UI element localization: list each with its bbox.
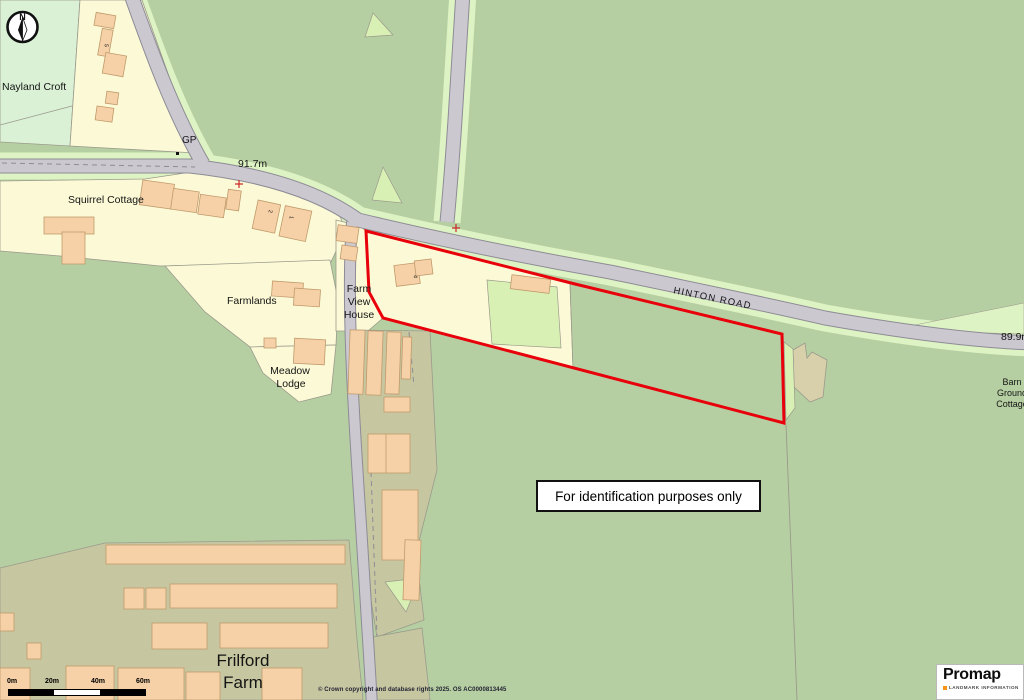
label-spot-height-91-7: 91.7m	[238, 158, 267, 170]
building	[414, 259, 433, 276]
building	[95, 106, 114, 122]
building	[385, 332, 401, 394]
label-frilford-farm: Frilford	[217, 651, 270, 670]
building	[340, 245, 358, 261]
map-viewport: Nayland Croft GP 91.7m Squirrel Cottage …	[0, 0, 1024, 700]
north-arrow: N	[8, 12, 38, 42]
building	[226, 189, 242, 211]
label-barn-ground-cottage: Cottage	[996, 399, 1024, 409]
scale-tick: 60m	[136, 678, 150, 685]
label-farm-view-house: View	[348, 296, 371, 308]
compass-north-label: N	[19, 12, 26, 22]
building	[366, 331, 383, 395]
scale-tick: 40m	[91, 678, 105, 685]
building-barn	[106, 545, 345, 564]
gp-marker	[176, 152, 179, 155]
green-strip-site-edge	[784, 342, 795, 420]
map-canvas: Nayland Croft GP 91.7m Squirrel Cottage …	[0, 0, 1024, 700]
building	[102, 52, 126, 76]
label-plot-number-4: 4	[412, 275, 418, 279]
identification-notice: For identification purposes only	[536, 480, 761, 512]
building	[384, 397, 410, 412]
label-frilford-farm: Farm	[223, 673, 263, 692]
landmark-tagline: LANDMARK INFORMATION	[949, 685, 1019, 690]
building	[62, 232, 85, 264]
copyright-text: © Crown copyright and database rights 20…	[318, 687, 507, 693]
building	[105, 91, 119, 105]
building	[0, 613, 14, 631]
building	[401, 337, 411, 379]
scale-segment	[9, 690, 54, 695]
scale-tick: 20m	[45, 678, 59, 685]
promap-wordmark: Promap	[943, 666, 1023, 684]
label-barn-ground-cottage: Barn	[1002, 377, 1021, 387]
label-barn-ground-cottage: Ground	[997, 388, 1024, 398]
label-farmlands: Farmlands	[227, 295, 277, 307]
label-squirrel-cottage: Squirrel Cottage	[68, 194, 144, 206]
building	[262, 668, 302, 700]
scale-segment	[54, 690, 99, 695]
promap-logo: Promap LANDMARK INFORMATION	[936, 664, 1024, 700]
scale-bar-segments	[8, 689, 146, 696]
building	[124, 588, 144, 609]
label-farm-view-house: House	[344, 309, 375, 321]
scale-tick: 0m	[7, 678, 17, 685]
label-spot-height-89-9: 89.9m	[1001, 331, 1024, 343]
building	[139, 180, 174, 209]
building	[171, 188, 200, 212]
identification-notice-text: For identification purposes only	[555, 489, 742, 504]
label-farm-view-house: Farm	[347, 283, 372, 295]
building	[348, 330, 365, 394]
building	[403, 540, 421, 601]
building	[293, 338, 325, 365]
building-barn	[170, 584, 337, 608]
building	[368, 434, 410, 473]
scale-segment	[100, 690, 145, 695]
building	[198, 194, 227, 217]
scale-bar: 0m 20m 40m 60m	[8, 678, 144, 698]
label-meadow-lodge: Meadow	[270, 365, 310, 377]
building	[279, 206, 312, 242]
building	[336, 225, 359, 244]
building	[293, 288, 320, 307]
label-gp: GP	[182, 135, 197, 146]
building	[44, 217, 94, 234]
building	[27, 643, 41, 659]
building	[264, 338, 276, 348]
building	[152, 623, 207, 649]
building	[146, 588, 166, 609]
label-meadow-lodge: Lodge	[276, 378, 305, 390]
landmark-orange-square-icon	[943, 686, 947, 690]
building	[186, 672, 220, 700]
building-barn	[220, 623, 328, 648]
label-nayland-croft: Nayland Croft	[2, 81, 66, 93]
